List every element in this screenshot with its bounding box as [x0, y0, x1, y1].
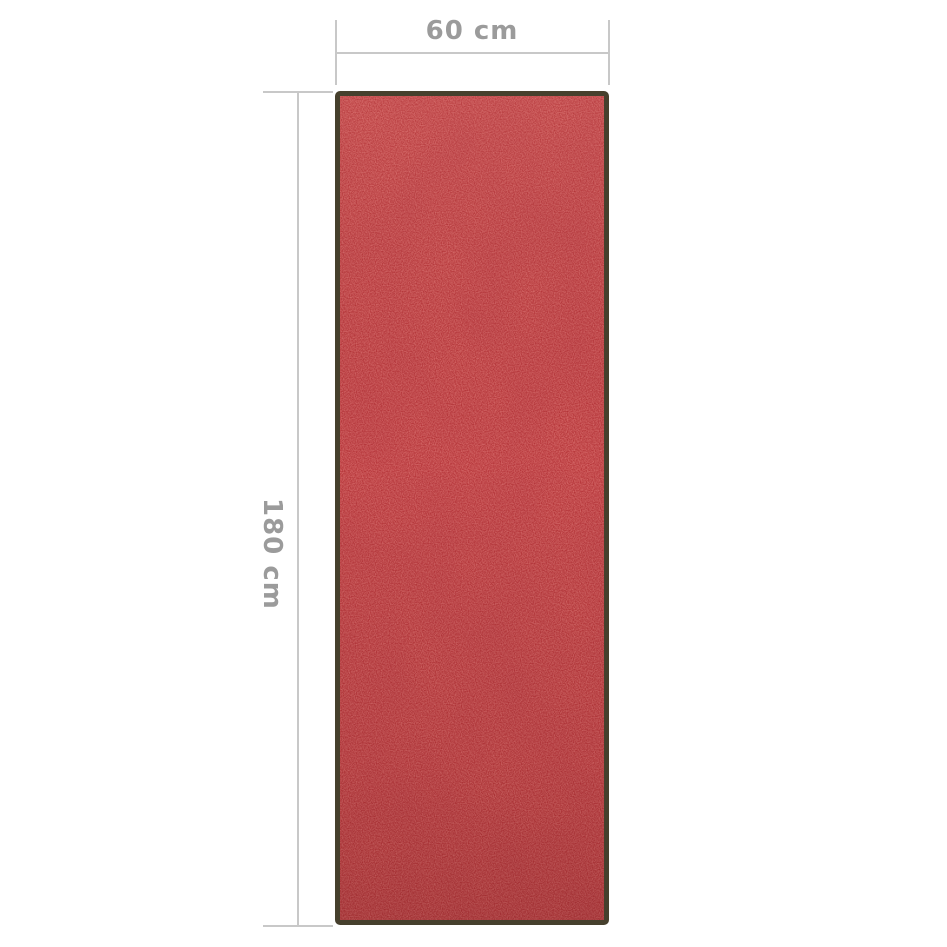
doormat-photo: [335, 91, 609, 925]
doormat-carpet-texture: [340, 96, 604, 920]
width-dimension-label: 60 cm: [335, 16, 609, 46]
height-dimension-tick-top: [263, 91, 333, 93]
width-dimension-tick-left: [335, 20, 337, 85]
height-dimension-label: 180 cm: [257, 498, 287, 610]
height-dimension-line: [297, 91, 299, 927]
height-dimension-tick-bottom: [263, 925, 333, 927]
product-dimension-image: 60 cm 180 cm: [0, 0, 947, 947]
width-dimension-tick-right: [608, 20, 610, 85]
width-dimension-line: [336, 52, 608, 54]
